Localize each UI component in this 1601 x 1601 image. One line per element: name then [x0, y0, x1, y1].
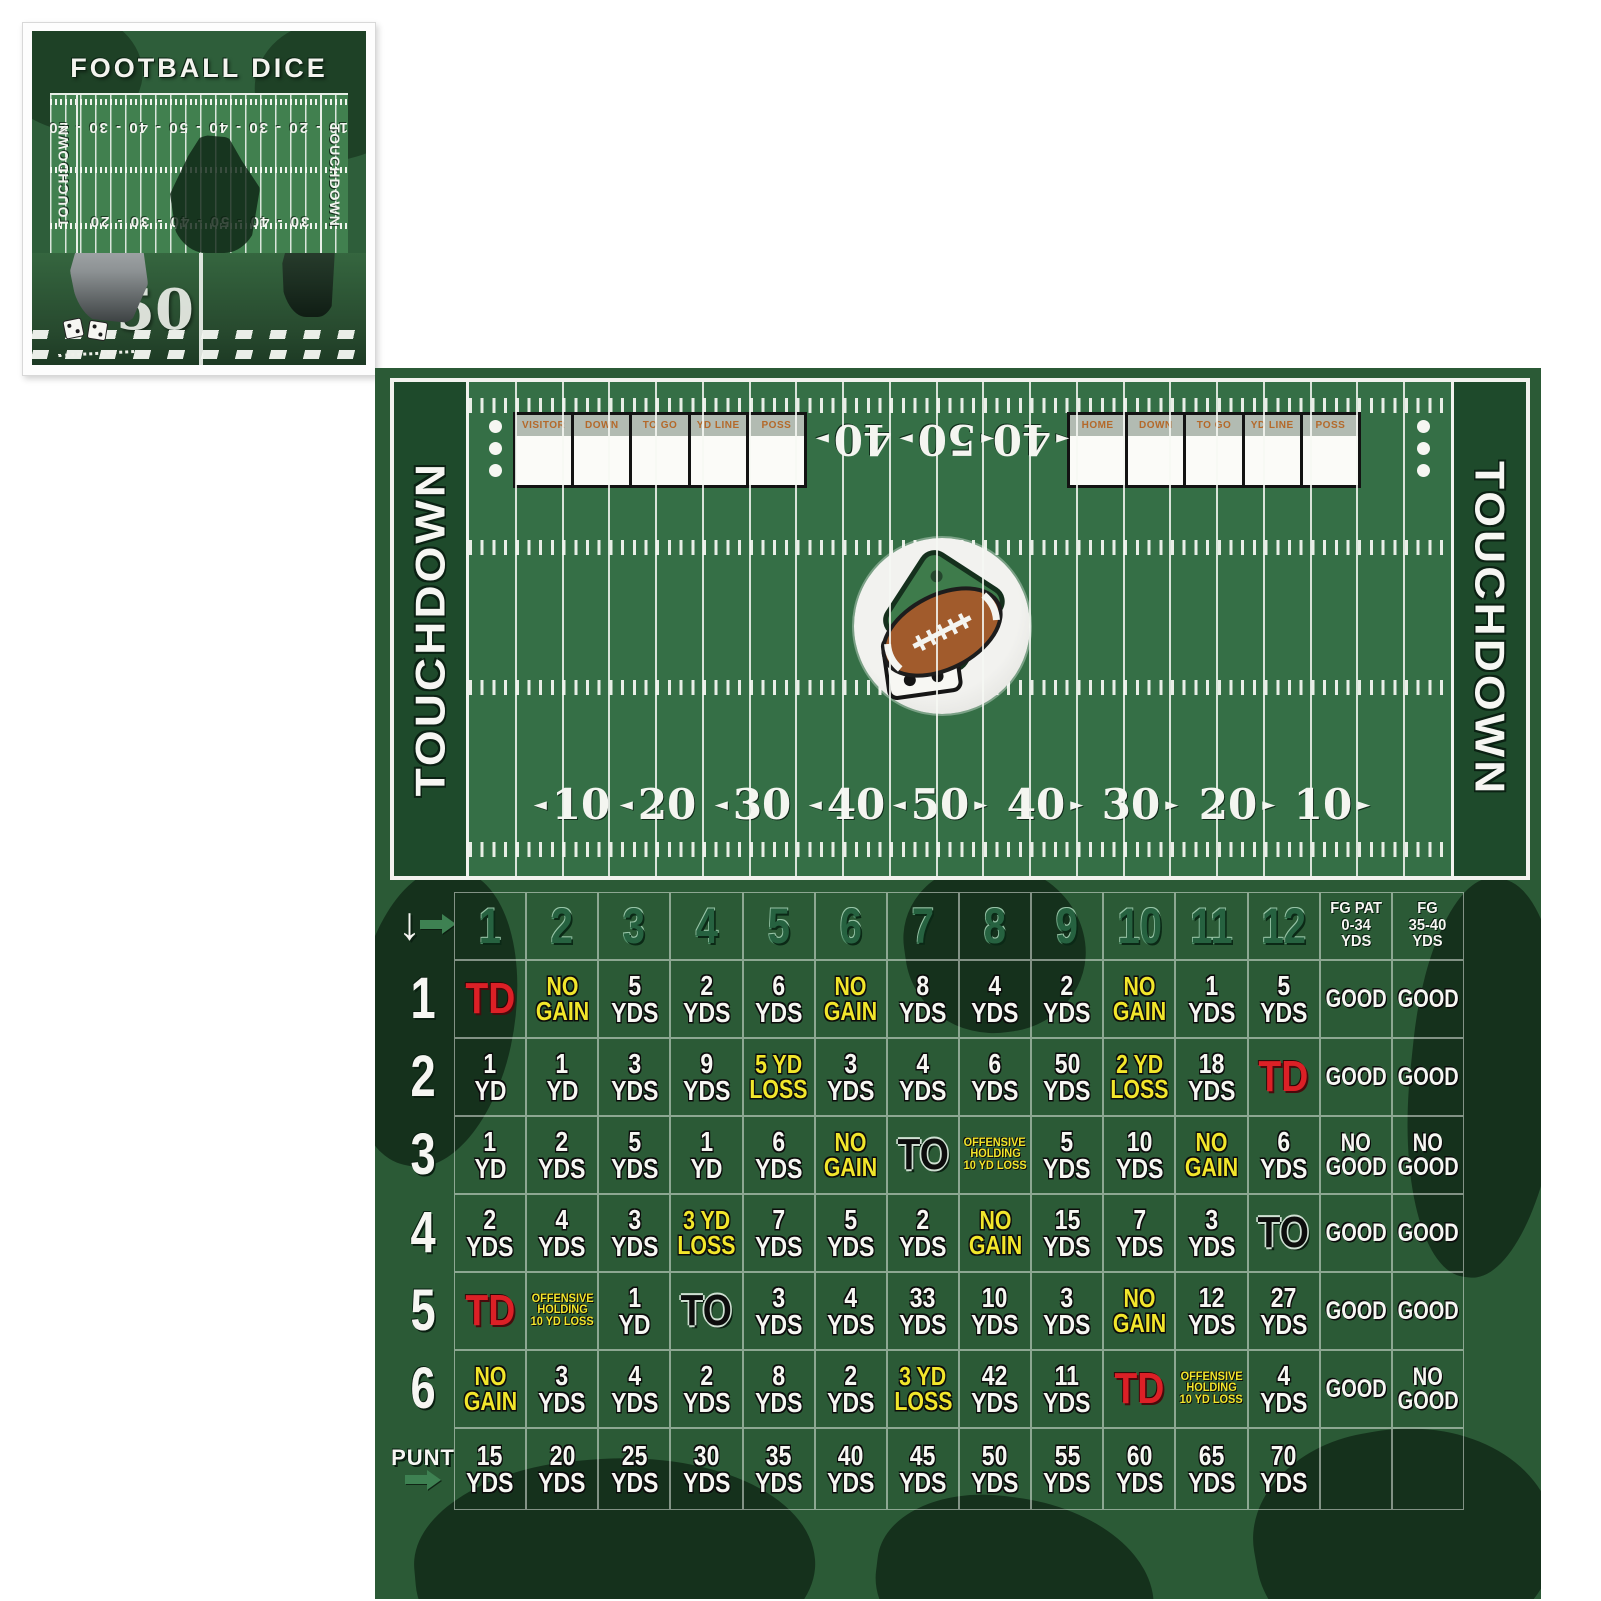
result-text: YDS [899, 1311, 946, 1338]
arrow-icon: ◄ [1056, 431, 1069, 448]
result-text: YDS [1188, 1233, 1235, 1260]
result-text: YDS [539, 1233, 586, 1260]
yard-number: 40► [1007, 784, 1084, 826]
hash-marks [469, 842, 1451, 857]
yard-number: ◄40 [809, 784, 886, 826]
die-icon [62, 317, 85, 340]
result-cell: 4YDS [887, 1038, 959, 1116]
result-text: 35 [766, 1442, 792, 1469]
result-cell: 2YDS [454, 1194, 526, 1272]
result-text: 27 [1271, 1284, 1297, 1311]
result-text: YDS [755, 1233, 802, 1260]
result-text: YDS [611, 1233, 658, 1260]
result-text: YDS [539, 1155, 586, 1182]
result-text: YDS [1044, 1389, 1091, 1416]
yard-line [749, 382, 751, 876]
result-text: YDS [1260, 1469, 1307, 1496]
arrow-icon: ► [974, 797, 987, 814]
result-text: GAIN [824, 1155, 877, 1180]
row-header-6: 6 [392, 1350, 454, 1428]
result-cell: 65YDS [1175, 1428, 1247, 1510]
result-text: TD [465, 1289, 515, 1332]
thumbnail-turf: 50 [32, 253, 366, 365]
row-header-5: 5 [392, 1272, 454, 1350]
result-text: 11 [1055, 1362, 1079, 1389]
yard-line [1029, 382, 1031, 876]
column-number: 3 [623, 901, 645, 951]
result-text: 2 [700, 972, 713, 999]
yard-number: ◄10 [534, 784, 611, 826]
result-text: 60 [1127, 1442, 1153, 1469]
arrow-shaft [405, 1475, 427, 1484]
result-text: YDS [611, 1077, 658, 1104]
dice-logo [58, 319, 138, 355]
result-cell: 3YDS [598, 1194, 670, 1272]
number: 40 [1007, 784, 1065, 826]
result-cell: 7YDS [1103, 1194, 1175, 1272]
yard-number: ◄50► [893, 784, 988, 826]
result-text: 7 [1133, 1206, 1146, 1233]
arrow-icon: ► [1357, 797, 1370, 814]
product-page: FOOTBALL DICE 10 - 20 - 30 - 40 - 50 - 4… [0, 0, 1601, 1601]
logo-scribble [58, 341, 135, 357]
endzone-left: TOUCHDOWN [394, 382, 469, 876]
yard-number: 10► [1294, 784, 1371, 826]
result-cell: NOGAIN [1103, 1272, 1175, 1350]
result-cell: 2YDS [670, 1350, 742, 1428]
arrow-icon: ◄ [809, 797, 822, 814]
punt-label: PUNT [392, 1448, 454, 1468]
result-cell: NOGAIN [526, 960, 598, 1038]
result-cell: 1YD [526, 1038, 598, 1116]
yard-number: 30► [1102, 784, 1179, 826]
result-text: NO [1413, 1131, 1443, 1156]
result-text: GOOD [1397, 1155, 1458, 1180]
result-text: GAIN [1185, 1155, 1238, 1180]
result-text: 45 [910, 1442, 936, 1469]
result-cell: GOOD [1320, 960, 1392, 1038]
result-cell: 50YDS [959, 1428, 1031, 1510]
result-text: YDS [539, 1389, 586, 1416]
result-text: GAIN [1113, 999, 1166, 1024]
result-text: GOOD [1397, 1221, 1458, 1246]
result-text: 50 [1054, 1050, 1080, 1077]
result-text: 2 [700, 1362, 713, 1389]
fg-header-line: FG PAT [1330, 901, 1382, 918]
arrow-icon: ◄ [715, 797, 728, 814]
result-text: YDS [611, 1389, 658, 1416]
yard-line [515, 382, 517, 876]
result-text: YDS [899, 1077, 946, 1104]
column-header-fg-1: FG PAT0-34YDS [1320, 892, 1392, 960]
result-text: 3 [628, 1050, 641, 1077]
result-text: YDS [1044, 1077, 1091, 1104]
result-text: GAIN [1113, 1311, 1166, 1336]
arrow-head [427, 1470, 441, 1490]
row-header-4: 4 [392, 1194, 454, 1272]
result-cell: GOOD [1320, 1194, 1392, 1272]
result-text: LOSS [750, 1077, 808, 1102]
column-header-10: 10 [1103, 892, 1175, 960]
result-cell: 2YDS [526, 1116, 598, 1194]
result-text: GOOD [1325, 1065, 1386, 1090]
result-text: TD [1259, 1055, 1309, 1098]
yard-line [608, 382, 610, 876]
column-header-2: 2 [526, 892, 598, 960]
result-cell: 60YDS [1103, 1428, 1175, 1510]
result-text: GOOD [1397, 1065, 1458, 1090]
result-text: 6 [772, 972, 785, 999]
result-text: YDS [971, 1311, 1018, 1338]
number: 50 [918, 418, 976, 460]
column-header-6: 6 [815, 892, 887, 960]
result-text: 9 [700, 1050, 713, 1077]
result-cell: GOOD [1392, 1194, 1464, 1272]
result-text: 30 [694, 1442, 720, 1469]
result-cell: NOGOOD [1392, 1116, 1464, 1194]
endzone-label: TOUCHDOWN [55, 124, 71, 227]
result-text: 20 [549, 1442, 575, 1469]
result-text: 65 [1199, 1442, 1225, 1469]
column-header-fg-2: FG35-40YDS [1392, 892, 1464, 960]
box-art: FOOTBALL DICE 10 - 20 - 30 - 40 - 50 - 4… [32, 31, 366, 365]
result-cell: 5 YDLOSS [743, 1038, 815, 1116]
result-text: 12 [1199, 1284, 1225, 1311]
thumbnail-title: FOOTBALL DICE [32, 53, 366, 84]
result-text: TD [465, 977, 515, 1020]
result-text: 70 [1271, 1442, 1297, 1469]
result-text: YDS [1260, 1155, 1307, 1182]
yard-number: 40► [816, 418, 893, 460]
result-cell: 2YDS [887, 1194, 959, 1272]
result-text: 5 [628, 1128, 641, 1155]
result-text: TO [681, 1289, 732, 1332]
midfield-line [199, 253, 203, 365]
number: 40 [993, 418, 1051, 460]
midfield: VISITORDOWNTO GOYD LINEPOSS HOMEDOWNTO G… [469, 382, 1451, 876]
result-cell: 1YD [598, 1272, 670, 1350]
fg-header-text: FG35-40YDS [1409, 901, 1447, 951]
yard-line [1356, 382, 1358, 876]
yard-line [562, 382, 564, 876]
result-cell: TO [1248, 1194, 1320, 1272]
result-cell: NOGAIN [959, 1194, 1031, 1272]
result-cell: 2YDS [1031, 960, 1103, 1038]
result-text: GAIN [824, 999, 877, 1024]
result-cell: 8YDS [743, 1350, 815, 1428]
result-cell: 6YDS [1248, 1116, 1320, 1194]
result-text: 3 [556, 1362, 569, 1389]
yard-line [1310, 382, 1312, 876]
result-text: YD [474, 1077, 506, 1104]
result-text: 6 [989, 1050, 1002, 1077]
punt-arrow-icon [405, 1470, 441, 1490]
result-text: YD [546, 1077, 578, 1104]
result-cell: TO [670, 1272, 742, 1350]
result-cell: NOGOOD [1392, 1350, 1464, 1428]
result-text: 40 [838, 1442, 864, 1469]
result-text: GOOD [1397, 987, 1458, 1012]
result-text: YDS [971, 999, 1018, 1026]
arrow-icon: ► [1165, 797, 1178, 814]
result-text: 4 [989, 972, 1002, 999]
result-cell: OFFENSIVEHOLDING10 YD LOSS [959, 1116, 1031, 1194]
column-header-3: 3 [598, 892, 670, 960]
result-text: YDS [1044, 1469, 1091, 1496]
result-cell [1320, 1428, 1392, 1510]
row-number: 4 [410, 1207, 435, 1259]
column-number: 1 [479, 901, 501, 951]
dice-football-logo [854, 538, 1030, 714]
arrow-icon: ◄ [534, 797, 547, 814]
result-cell: 8YDS [887, 960, 959, 1038]
result-text: 3 [628, 1206, 641, 1233]
result-cell: 5YDS [598, 960, 670, 1038]
result-text: YDS [827, 1311, 874, 1338]
result-text: 3 [1205, 1206, 1218, 1233]
result-text: 15 [1054, 1206, 1080, 1233]
yard-line [1076, 382, 1078, 876]
column-header-1: 1 [454, 892, 526, 960]
result-text: GOOD [1325, 1221, 1386, 1246]
result-text: 10 [982, 1284, 1008, 1311]
result-cell: 33YDS [887, 1272, 959, 1350]
result-text: 2 [556, 1128, 569, 1155]
row-number: 3 [410, 1129, 435, 1181]
result-text: YDS [1188, 1311, 1235, 1338]
result-text: YDS [971, 1389, 1018, 1416]
result-text: GOOD [1325, 1155, 1386, 1180]
endzone-label: TOUCHDOWN [327, 124, 343, 227]
result-text: GAIN [536, 999, 589, 1024]
result-text: YDS [1116, 1155, 1163, 1182]
endzone-label: TOUCHDOWN [1466, 461, 1515, 796]
column-header-5: 5 [743, 892, 815, 960]
result-text: 8 [917, 972, 930, 999]
result-text: 25 [622, 1442, 648, 1469]
yard-line [1123, 382, 1125, 876]
column-number: 6 [840, 901, 862, 951]
yard-line [936, 382, 938, 876]
arrow-icon: ◄ [620, 797, 633, 814]
result-cell: 3YDS [598, 1038, 670, 1116]
result-cell: TO [887, 1116, 959, 1194]
column-header-8: 8 [959, 892, 1031, 960]
result-text: 8 [772, 1362, 785, 1389]
result-text: GOOD [1325, 1377, 1386, 1402]
column-number: 10 [1117, 901, 1162, 951]
row-number: 2 [410, 1051, 435, 1103]
row-number: 6 [410, 1363, 435, 1415]
result-text: 1 [1205, 972, 1218, 999]
result-cell: 1YD [454, 1116, 526, 1194]
row-header-punt: PUNT [392, 1428, 454, 1510]
result-text: 5 [844, 1206, 857, 1233]
arrow-icon: ► [900, 431, 913, 448]
result-text: 2 [917, 1206, 930, 1233]
result-cell: GOOD [1320, 1350, 1392, 1428]
column-number: 12 [1261, 901, 1306, 951]
fg-header-line: 35-40 [1409, 918, 1447, 935]
result-cell: 10YDS [1103, 1116, 1175, 1194]
result-cell: 1YD [670, 1116, 742, 1194]
result-text: YDS [1188, 1077, 1235, 1104]
result-cell: 3YDS [743, 1272, 815, 1350]
yard-number: ◄20 [620, 784, 697, 826]
result-text: LOSS [677, 1233, 735, 1258]
column-header-11: 11 [1175, 892, 1247, 960]
result-text: YDS [539, 1469, 586, 1496]
result-text: 15 [477, 1442, 503, 1469]
result-cell: 10YDS [959, 1272, 1031, 1350]
result-cell: 15YDS [1031, 1194, 1103, 1272]
result-text: NO [1413, 1365, 1443, 1390]
result-cell: 5YDS [598, 1116, 670, 1194]
fg-header-text: FG PAT0-34YDS [1330, 901, 1382, 951]
row-number: 1 [410, 973, 435, 1025]
result-cell: 45YDS [887, 1428, 959, 1510]
game-board: TOUCHDOWN VISITORDOWNTO GOYD LINEPOSS HO… [375, 368, 1541, 1599]
result-cell: OFFENSIVEHOLDING10 YD LOSS [526, 1272, 598, 1350]
result-cell: 18YDS [1175, 1038, 1247, 1116]
result-text: 5 [1277, 972, 1290, 999]
number: 30 [1102, 784, 1160, 826]
result-text: YDS [899, 1469, 946, 1496]
result-text: YDS [971, 1469, 1018, 1496]
arrow-head [442, 914, 454, 934]
box-thumbnail: FOOTBALL DICE 10 - 20 - 30 - 40 - 50 - 4… [22, 22, 376, 376]
result-text: GOOD [1397, 1299, 1458, 1324]
result-cell: 4YDS [815, 1272, 887, 1350]
result-text: TO [1258, 1211, 1309, 1254]
result-cell: 20YDS [526, 1428, 598, 1510]
result-text: 2 [484, 1206, 497, 1233]
result-text: YD [691, 1155, 723, 1182]
result-cell: 4YDS [959, 960, 1031, 1038]
table-corner: ↓ [392, 892, 454, 960]
result-text: YDS [827, 1469, 874, 1496]
result-text: YDS [466, 1233, 513, 1260]
result-text: 4 [628, 1362, 641, 1389]
result-text: 4 [556, 1206, 569, 1233]
result-text: 2 [844, 1362, 857, 1389]
football-dice-icon [854, 538, 1030, 714]
result-text: YDS [1044, 1155, 1091, 1182]
results-table: ↓123456789101112FG PAT0-34YDSFG35-40YDS1… [392, 892, 1464, 1510]
result-cell: 3YDS [815, 1038, 887, 1116]
result-text: YDS [755, 1469, 802, 1496]
result-cell: 11YDS [1031, 1350, 1103, 1428]
result-cell: GOOD [1392, 1038, 1464, 1116]
column-header-12: 12 [1248, 892, 1320, 960]
die-icon [87, 320, 109, 342]
result-cell: 2YDS [815, 1350, 887, 1428]
yard-line [1169, 382, 1171, 876]
result-text: 6 [772, 1128, 785, 1155]
result-text: GOOD [1397, 1389, 1458, 1414]
result-cell: 6YDS [959, 1038, 1031, 1116]
column-number: 8 [984, 901, 1006, 951]
result-text: YDS [683, 1469, 730, 1496]
result-cell: 25YDS [598, 1428, 670, 1510]
result-cell: 3YDS [1031, 1272, 1103, 1350]
result-text: YDS [1188, 1469, 1235, 1496]
yard-line [982, 382, 984, 876]
result-cell: 1YDS [1175, 960, 1247, 1038]
result-text: YDS [1116, 1233, 1163, 1260]
yard-line [702, 382, 704, 876]
result-text: YDS [611, 1155, 658, 1182]
result-text: 5 [1061, 1128, 1074, 1155]
result-text: YDS [466, 1469, 513, 1496]
result-text: 6 [1277, 1128, 1290, 1155]
result-text: NO [1341, 1131, 1371, 1156]
column-number: 11 [1190, 901, 1232, 951]
number: 10 [1294, 784, 1352, 826]
result-text: YDS [1260, 999, 1307, 1026]
result-cell: NOGAIN [454, 1350, 526, 1428]
yard-number: ◄50► [900, 418, 995, 460]
result-cell: 2YDS [670, 960, 742, 1038]
column-header-4: 4 [670, 892, 742, 960]
number: 40 [827, 784, 885, 826]
result-cell: 12YDS [1175, 1272, 1247, 1350]
yard-line [889, 382, 891, 876]
result-cell: 1YD [454, 1038, 526, 1116]
number: 20 [638, 784, 696, 826]
result-text: YDS [1044, 1233, 1091, 1260]
result-text: 10 [1127, 1128, 1153, 1155]
result-cell: 35YDS [743, 1428, 815, 1510]
result-text: GAIN [463, 1389, 516, 1414]
result-cell: 5YDS [1248, 960, 1320, 1038]
result-text: YDS [755, 999, 802, 1026]
result-text: 42 [982, 1362, 1008, 1389]
thumbnail-top-yard-numbers: 10 - 20 - 30 - 40 - 50 - 40 - 30 - 20 - … [50, 119, 348, 136]
result-text: 1 [484, 1128, 497, 1155]
arrow-shaft [420, 920, 442, 929]
result-text: 1 [700, 1128, 713, 1155]
fg-header-line: FG [1409, 901, 1447, 918]
result-text: YDS [683, 1077, 730, 1104]
result-cell: TD [1103, 1350, 1175, 1428]
result-text: 4 [1277, 1362, 1290, 1389]
result-cell: TD [454, 1272, 526, 1350]
number: 50 [911, 784, 969, 826]
result-cell: TD [1248, 1038, 1320, 1116]
result-text: YDS [683, 999, 730, 1026]
result-text: GOOD [1325, 987, 1386, 1012]
result-cell: NOGOOD [1320, 1116, 1392, 1194]
result-text: YDS [1188, 999, 1235, 1026]
result-cell: TD [454, 960, 526, 1038]
bottom-yard-numbers: ◄10◄20◄30◄40◄50►40►30►20►10► [469, 784, 1451, 836]
result-cell: NOGAIN [815, 960, 887, 1038]
result-cell: GOOD [1392, 960, 1464, 1038]
result-text: YDS [683, 1389, 730, 1416]
result-cell: 5YDS [815, 1194, 887, 1272]
result-text: 10 YD LOSS [1180, 1395, 1243, 1406]
result-text: 10 YD LOSS [964, 1161, 1027, 1172]
column-header-9: 9 [1031, 892, 1103, 960]
number: 20 [1199, 784, 1257, 826]
result-cell: 2 YDLOSS [1103, 1038, 1175, 1116]
thumbnail-endzone-left: TOUCHDOWN [50, 95, 78, 255]
column-number: 7 [912, 901, 934, 951]
result-text: 1 [484, 1050, 497, 1077]
right-arrow-icon [420, 914, 454, 934]
result-text: 2 [1061, 972, 1074, 999]
